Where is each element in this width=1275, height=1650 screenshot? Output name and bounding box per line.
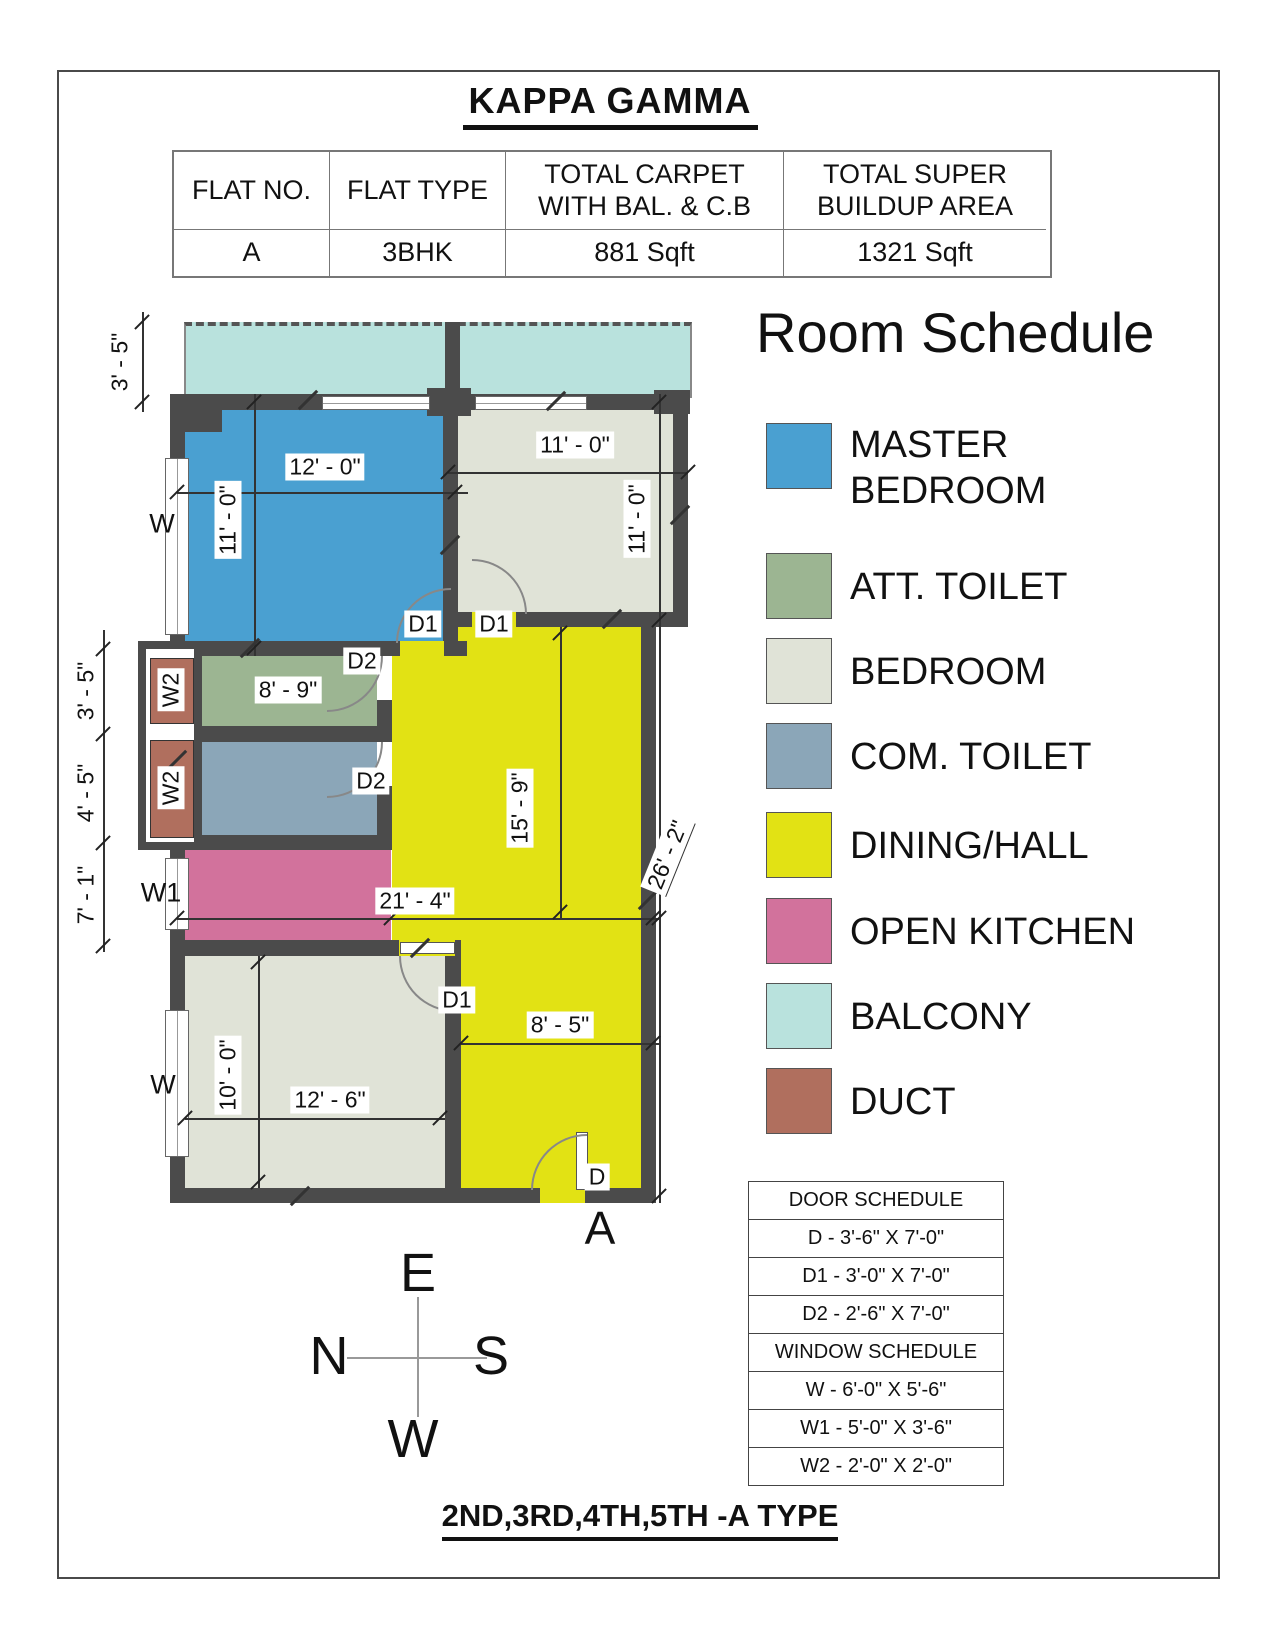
room-open-kitchen (185, 850, 391, 940)
dim-master-height: 11' - 0" (215, 481, 242, 559)
dim-line-hall-width (177, 918, 659, 920)
info-header-super: TOTAL SUPER BUILDUP AREA (784, 152, 1046, 230)
dim-line-overall-height (659, 394, 661, 1203)
dim-line-hall-height (560, 627, 562, 918)
info-header-flat-type: FLAT TYPE (330, 152, 506, 230)
compass-horizontal-line (347, 1357, 487, 1359)
door-tag-d2-com-toilet: D2 (352, 768, 389, 795)
flat-info-table: FLAT NO. FLAT TYPE TOTAL CARPET WITH BAL… (172, 150, 1052, 278)
wall-bedroom1-bottom-a (458, 612, 472, 627)
window-slit-balcony-left (322, 396, 430, 410)
door-window-schedule: DOOR SCHEDULE D - 3'-6" X 7'-0" D1 - 3'-… (748, 1181, 1004, 1486)
page-title-text: KAPPA GAMMA (463, 80, 758, 130)
compass-west: W (388, 1408, 439, 1470)
schedule-row-w2: W2 - 2'-0" X 2'-0" (749, 1447, 1003, 1485)
schedule-row-d: D - 3'-6" X 7'-0" (749, 1219, 1003, 1257)
legend-label-duct: DUCT (850, 1080, 956, 1126)
wall-master-bottom-b (444, 641, 467, 656)
dim-line-passage-width (461, 1043, 659, 1045)
dim-hall-width: 21' - 4" (375, 888, 454, 915)
window-tag-w1-kitchen: W1 (141, 878, 182, 909)
door-tag-d1-master: D1 (404, 611, 441, 638)
window-slit-balcony-right (475, 396, 587, 410)
schedule-row-w1: W1 - 5'-0" X 3'-6" (749, 1409, 1003, 1447)
dim-duct-top: 3' - 5" (73, 658, 100, 725)
legend-label-dining-hall: DINING/HALL (850, 824, 1089, 870)
legend-label-open-kitchen: OPEN KITCHEN (850, 910, 1135, 956)
dim-line-left-chain (103, 630, 105, 952)
door-tag-d1-bedroom2: D1 (438, 987, 475, 1014)
wall-att-toilet-bottom (177, 726, 392, 742)
page-title: KAPPA GAMMA (172, 80, 1048, 130)
window-w-master (165, 458, 189, 635)
sheet-footer-text: 2ND,3RD,4TH,5TH -A TYPE (442, 1498, 839, 1541)
entrance-label: A (585, 1201, 616, 1255)
room-schedule-title: Room Schedule (756, 300, 1154, 365)
dim-bedroom1-width: 11' - 0" (536, 432, 614, 459)
legend-label-att-toilet: ATT. TOILET (850, 565, 1068, 611)
dim-line-bedroom1-width (448, 472, 688, 474)
schedule-row-d2: D2 - 2'-6" X 7'-0" (749, 1295, 1003, 1333)
door-tag-d-entry: D (585, 1164, 610, 1191)
schedule-row-window-header: WINDOW SCHEDULE (749, 1333, 1003, 1371)
window-tag-w2-lower: W2 (158, 767, 185, 810)
dim-line-balcony-height (142, 312, 144, 412)
legend-label-master-bedroom: MASTER BEDROOM (850, 423, 1120, 514)
info-value-super: 1321 Sqft (784, 230, 1046, 276)
window-tag-w-master: W (149, 509, 174, 540)
wall-bedroom2-top-b (455, 940, 461, 956)
wall-bedroom2-top-a (170, 940, 399, 956)
door-leaf-d1-bedroom2 (400, 942, 455, 954)
sheet-footer: 2ND,3RD,4TH,5TH -A TYPE (300, 1498, 980, 1541)
dim-passage-width: 8' - 5" (527, 1012, 594, 1039)
schedule-row-w: W - 6'-0" X 5'-6" (749, 1371, 1003, 1409)
legend-swatch-duct (766, 1068, 832, 1134)
wall-bottom-a (170, 1188, 540, 1203)
door-tag-d1-bedroom1: D1 (475, 611, 512, 638)
dim-bedroom2-width: 12' - 6" (290, 1087, 369, 1114)
dim-master-width: 12' - 0" (285, 454, 364, 481)
info-header-flat-no: FLAT NO. (174, 152, 330, 230)
wall-hall-right (641, 612, 656, 1203)
dim-bedroom1-height: 11' - 0" (624, 480, 651, 558)
door-tag-d2-att-toilet: D2 (343, 648, 380, 675)
wall-balcony-divider (445, 322, 460, 394)
dim-kitchen-height: 7' - 1" (73, 862, 100, 929)
legend-swatch-master-bedroom (766, 423, 832, 489)
legend-swatch-bedroom (766, 638, 832, 704)
schedule-row-door-header: DOOR SCHEDULE (749, 1182, 1003, 1219)
compass-south: S (473, 1325, 509, 1387)
floor-plan-sheet: KAPPA GAMMA FLAT NO. FLAT TYPE TOTAL CAR… (0, 0, 1275, 1650)
legend-label-balcony: BALCONY (850, 995, 1032, 1041)
info-value-flat-no: A (174, 230, 330, 276)
window-tag-w-bedroom2: W (150, 1070, 175, 1101)
dim-balcony-height: 3' - 5" (107, 329, 134, 396)
room-balcony (184, 322, 692, 398)
legend-label-bedroom: BEDROOM (850, 650, 1046, 696)
dim-bedroom2-height: 10' - 0" (215, 1035, 242, 1114)
dim-line-master-height (254, 394, 256, 656)
dim-line-bedroom2-width (185, 1118, 445, 1120)
schedule-row-d1: D1 - 3'-0" X 7'-0" (749, 1257, 1003, 1295)
legend-swatch-com-toilet (766, 723, 832, 789)
info-header-carpet: TOTAL CARPET WITH BAL. & C.B (506, 152, 784, 230)
legend-swatch-att-toilet (766, 553, 832, 619)
dim-line-bedroom2-height (258, 956, 260, 1188)
legend-swatch-balcony (766, 983, 832, 1049)
window-tag-w2-upper: W2 (158, 669, 185, 712)
dim-att-toilet-width: 8' - 9" (255, 677, 322, 704)
legend-swatch-dining-hall (766, 812, 832, 878)
legend-label-com-toilet: COM. TOILET (850, 735, 1091, 781)
info-value-carpet: 881 Sqft (506, 230, 784, 276)
info-value-flat-type: 3BHK (330, 230, 506, 276)
dim-hall-height: 15' - 9" (507, 768, 534, 847)
legend-swatch-open-kitchen (766, 898, 832, 964)
dim-duct-bottom: 4' - 5" (73, 760, 100, 827)
compass-east: E (400, 1242, 436, 1304)
compass-north: N (310, 1325, 349, 1387)
wall-att-toilet-right (377, 700, 392, 726)
